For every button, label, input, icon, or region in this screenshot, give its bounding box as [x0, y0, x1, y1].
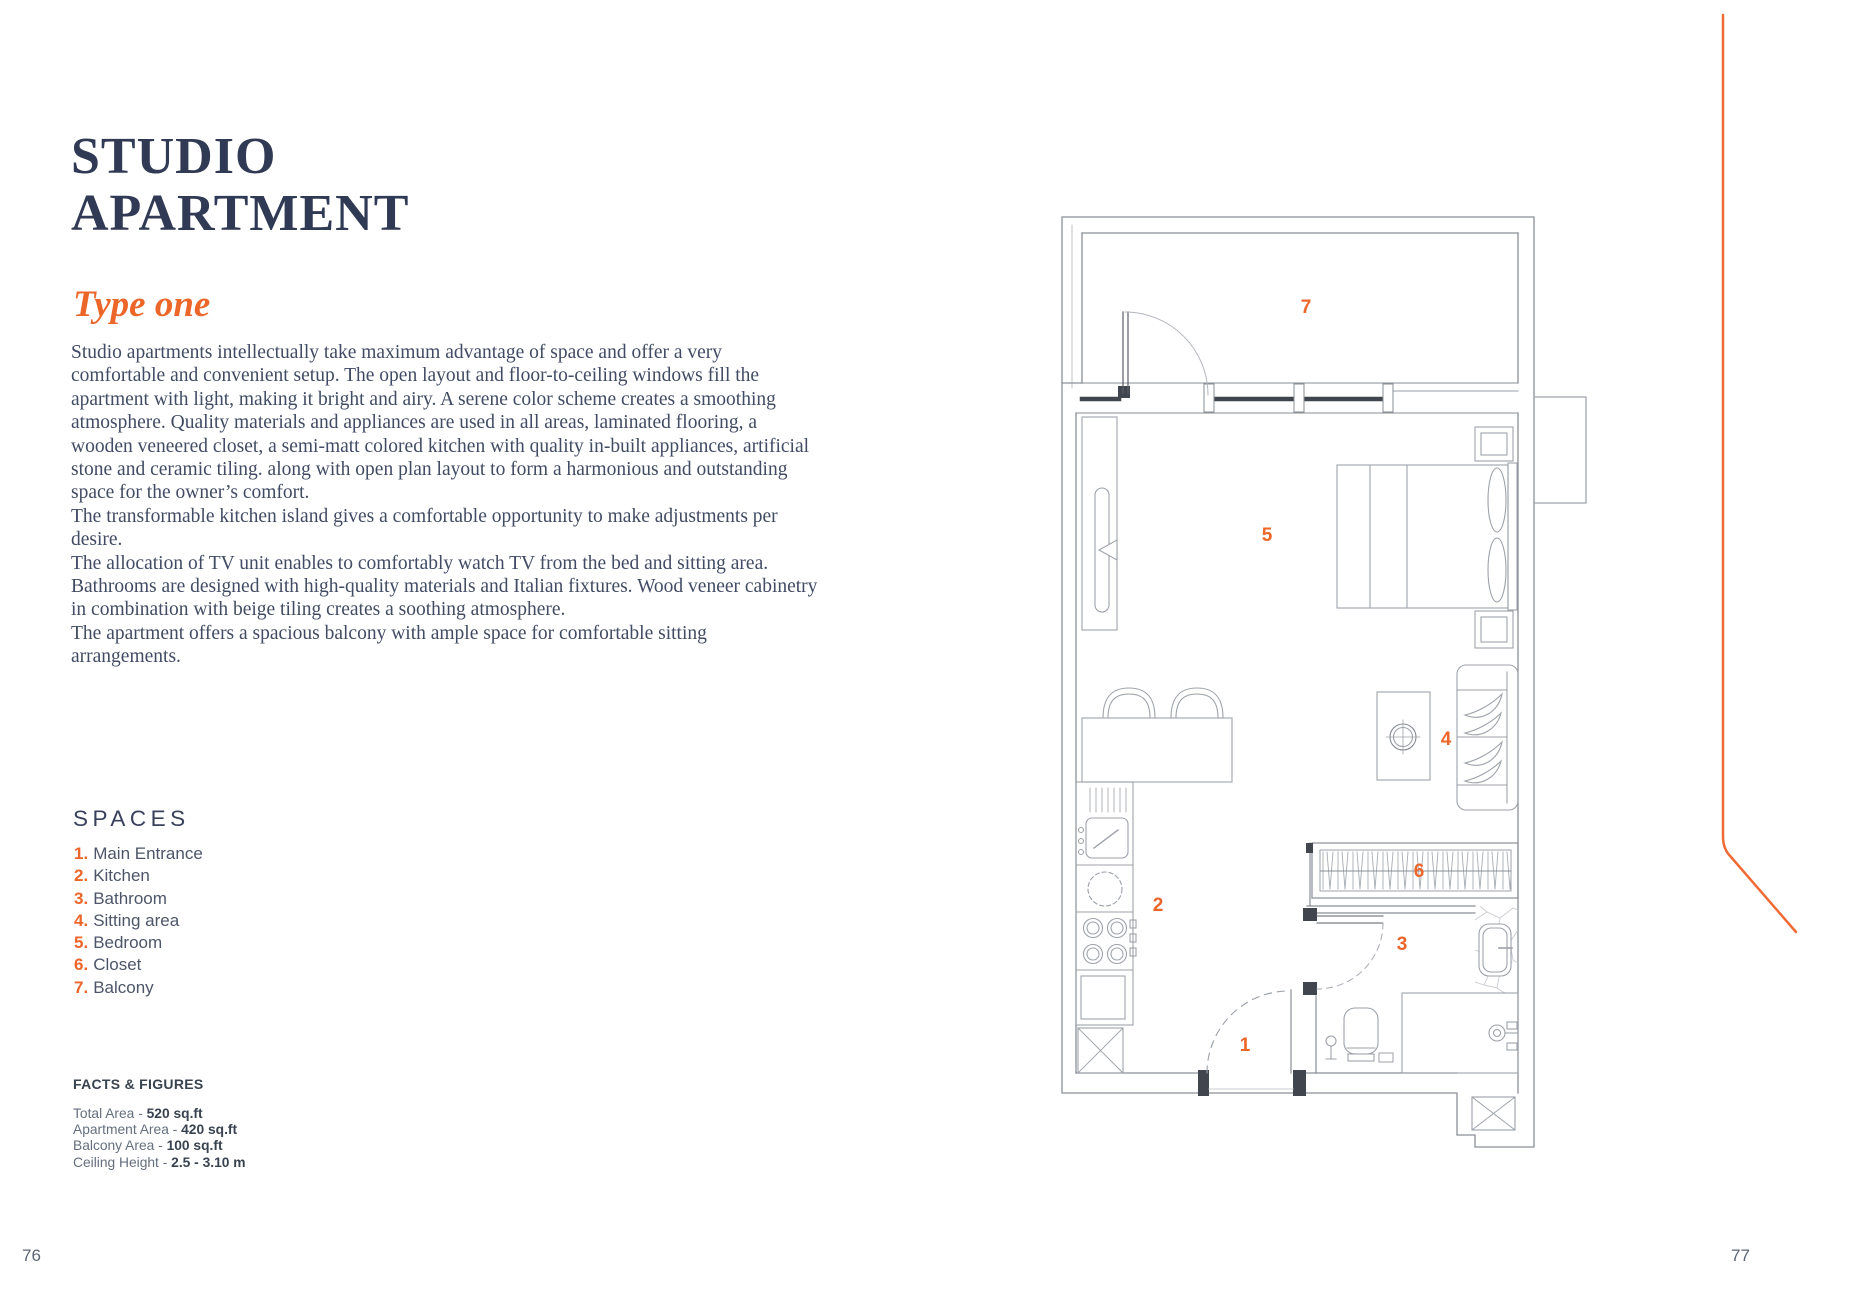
coffee-table [1377, 692, 1430, 780]
plan-label-kitchen: 2 [1153, 895, 1164, 917]
cooktop [1084, 919, 1137, 964]
nightstands [1475, 427, 1513, 648]
floor-plan-drawing [1040, 200, 1600, 1160]
list-item: 6.Closet [74, 954, 203, 976]
fact-row: Apartment Area - 420 sq.ft [73, 1122, 246, 1138]
fact-value: 100 sq.ft [167, 1138, 223, 1153]
plan-label-bedroom: 5 [1262, 525, 1273, 547]
facts-list: Total Area - 520 sq.ft Apartment Area - … [73, 1106, 246, 1171]
description-paragraph: The allocation of TV unit enables to com… [71, 552, 819, 575]
plan-label-sitting-area: 4 [1441, 729, 1452, 751]
item-label: Bathroom [93, 889, 167, 908]
description-block: Studio apartments intellectually take ma… [71, 341, 819, 669]
plan-label-main-entrance: 1 [1240, 1035, 1251, 1057]
bed [1337, 463, 1517, 610]
exterior-shaft [1534, 397, 1586, 503]
oven [1081, 976, 1125, 1019]
spaces-heading: SPACES [73, 806, 190, 832]
fact-value: 2.5 - 3.10 m [171, 1155, 245, 1170]
fact-label: Ceiling Height - [73, 1155, 171, 1170]
plan-label-balcony: 7 [1301, 297, 1312, 319]
fact-value: 420 sq.ft [181, 1122, 237, 1137]
description-paragraph: The transformable kitchen island gives a… [71, 505, 819, 552]
paper-holder [1379, 1053, 1393, 1062]
window-band [1076, 383, 1518, 413]
page-title: STUDIO APARTMENT [71, 128, 409, 242]
fact-label: Total Area - [73, 1106, 147, 1121]
item-label: Closet [93, 955, 141, 974]
tv-unit [1082, 417, 1117, 630]
brochure-page: STUDIO APARTMENT Type one Studio apartme… [0, 0, 1857, 1300]
list-item: 4.Sitting area [74, 910, 203, 932]
page-number-right: 77 [1731, 1246, 1750, 1266]
page-title-line1: STUDIO [71, 128, 409, 185]
facts-heading: FACTS & FIGURES [73, 1076, 204, 1092]
list-item: 5.Bedroom [74, 932, 203, 954]
fact-value: 520 sq.ft [147, 1106, 203, 1121]
main-entrance [1198, 991, 1306, 1096]
fact-label: Balcony Area - [73, 1138, 167, 1153]
list-item: 1.Main Entrance [74, 843, 203, 865]
plan-label-bathroom: 3 [1397, 934, 1408, 956]
kitchen-shaft [1078, 1028, 1123, 1073]
description-paragraph: Bathrooms are designed with high-quality… [71, 575, 819, 622]
item-number: 7. [74, 978, 88, 997]
kitchen-island [1082, 688, 1232, 782]
item-label: Main Entrance [93, 844, 203, 863]
fact-label: Apartment Area - [73, 1122, 181, 1137]
item-number: 4. [74, 911, 88, 930]
item-number: 1. [74, 844, 88, 863]
item-label: Balcony [93, 978, 153, 997]
sofa [1457, 665, 1518, 810]
item-number: 6. [74, 955, 88, 974]
bottom-shaft [1472, 1097, 1515, 1130]
item-label: Bedroom [93, 933, 162, 952]
kitchen-counter [1076, 782, 1136, 1073]
balcony-door [1118, 312, 1208, 398]
list-item: 2.Kitchen [74, 865, 203, 887]
item-number: 2. [74, 866, 88, 885]
description-paragraph: The apartment offers a spacious balcony … [71, 622, 819, 669]
page-number-left: 76 [22, 1246, 41, 1266]
page-subtitle: Type one [73, 283, 210, 326]
item-number: 5. [74, 933, 88, 952]
list-item: 7.Balcony [74, 977, 203, 999]
closet [1306, 843, 1518, 906]
item-label: Sitting area [93, 911, 179, 930]
description-paragraph: Studio apartments intellectually take ma… [71, 341, 819, 505]
page-title-line2: APARTMENT [71, 185, 409, 242]
toilet [1344, 1008, 1378, 1061]
washing-machine [1088, 872, 1122, 906]
list-item: 3.Bathroom [74, 888, 203, 910]
item-number: 3. [74, 889, 88, 908]
vanity [1402, 993, 1518, 1073]
plan-label-closet: 6 [1414, 861, 1425, 883]
shower-basin [1479, 924, 1512, 976]
fact-row: Balcony Area - 100 sq.ft [73, 1138, 246, 1154]
spaces-list: 1.Main Entrance 2.Kitchen 3.Bathroom 4.S… [74, 843, 203, 999]
fact-row: Ceiling Height - 2.5 - 3.10 m [73, 1155, 246, 1171]
bathroom [1291, 905, 1518, 1073]
fact-row: Total Area - 520 sq.ft [73, 1106, 246, 1122]
hand-sprayer [1326, 1036, 1336, 1059]
item-label: Kitchen [93, 866, 150, 885]
